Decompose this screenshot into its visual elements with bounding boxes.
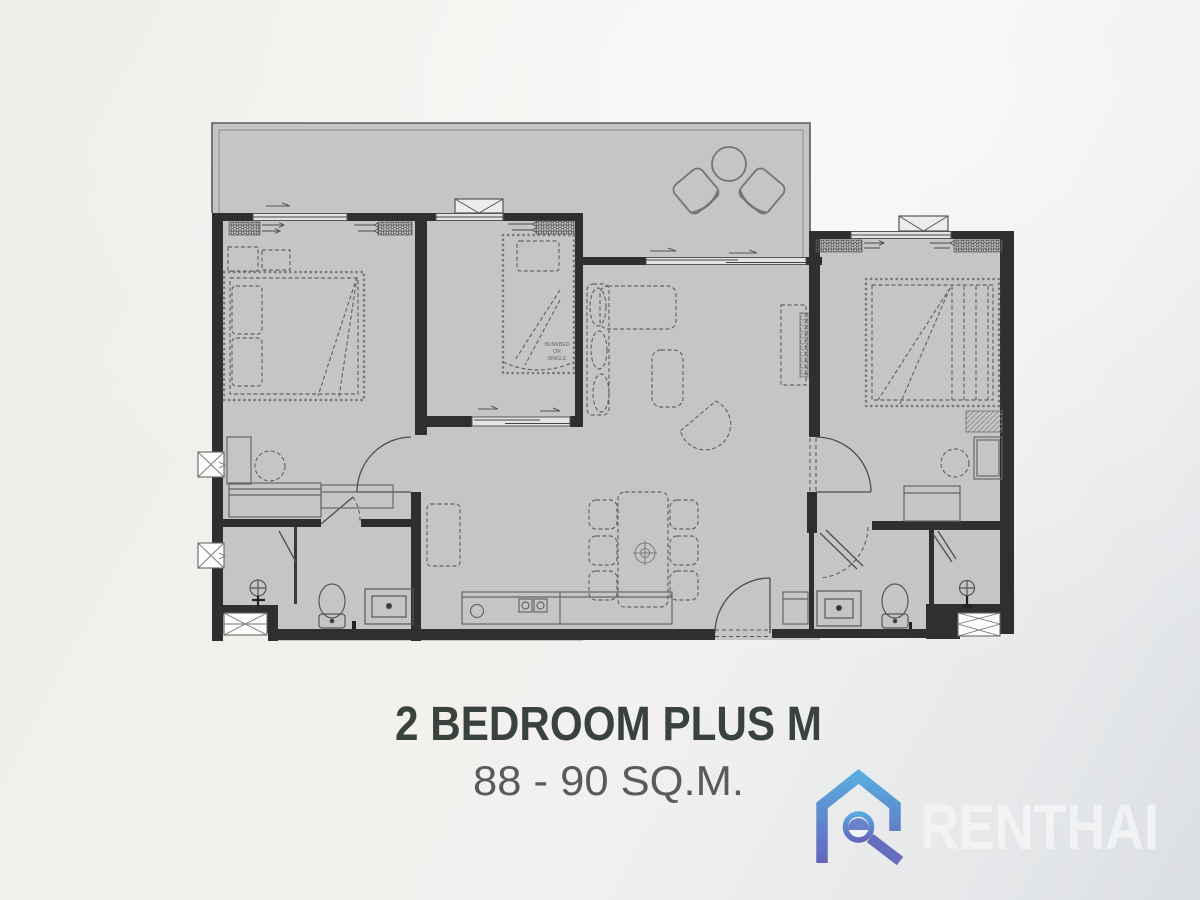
svg-text:BUNKBED: BUNKBED <box>544 342 569 348</box>
svg-text:OR: OR <box>553 349 561 355</box>
svg-text:SINGLE: SINGLE <box>547 356 567 362</box>
svg-text:88 - 90 SQ.M.: 88 - 90 SQ.M. <box>473 757 744 804</box>
svg-text:RENTHAI: RENTHAI <box>920 791 1159 863</box>
svg-text:2 BEDROOM PLUS M: 2 BEDROOM PLUS M <box>395 697 822 751</box>
